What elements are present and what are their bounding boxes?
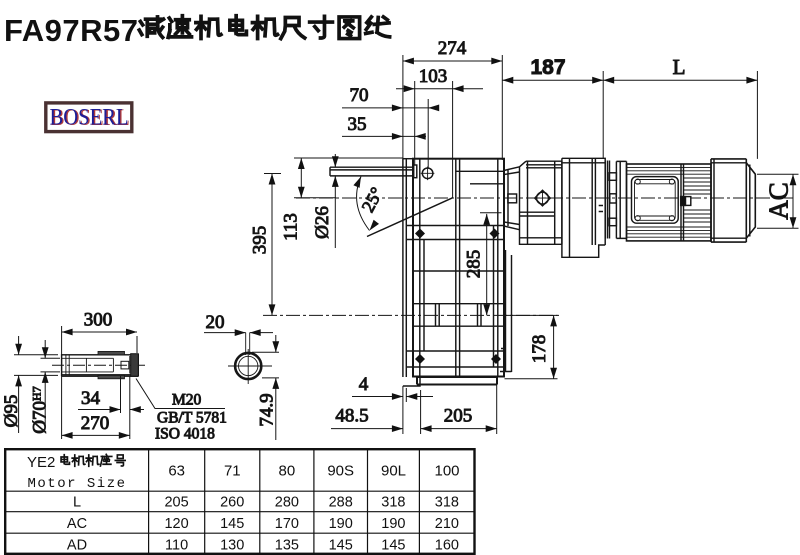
svg-text:80: 80: [279, 463, 296, 480]
svg-text:318: 318: [381, 495, 405, 511]
svg-text:Ø95: Ø95: [1, 395, 22, 428]
svg-text:318: 318: [435, 495, 459, 511]
svg-text:130: 130: [220, 537, 244, 553]
svg-text:100: 100: [434, 463, 459, 480]
svg-text:135: 135: [275, 537, 299, 553]
svg-text:FA97R57: FA97R57: [4, 13, 138, 48]
svg-text:113: 113: [281, 213, 302, 241]
svg-text:145: 145: [220, 516, 244, 532]
svg-text:90L: 90L: [381, 463, 406, 480]
svg-text:160: 160: [435, 537, 459, 553]
svg-text:145: 145: [381, 537, 405, 553]
svg-text:74.9: 74.9: [257, 393, 278, 426]
svg-text:187: 187: [530, 56, 565, 79]
svg-text:AD: AD: [67, 537, 87, 553]
svg-text:90S: 90S: [327, 463, 354, 480]
svg-text:274: 274: [438, 38, 467, 59]
svg-text:L: L: [73, 495, 81, 511]
svg-text:270: 270: [81, 413, 110, 434]
svg-text:103: 103: [419, 66, 448, 87]
svg-text:ISO 4018: ISO 4018: [155, 426, 215, 443]
svg-text:BOSERL: BOSERL: [50, 105, 129, 130]
svg-text:120: 120: [164, 516, 188, 532]
svg-text:63: 63: [168, 463, 185, 480]
svg-text:Motor Size: Motor Size: [27, 476, 126, 492]
svg-text:395: 395: [250, 226, 271, 255]
svg-text:20: 20: [206, 312, 225, 333]
svg-text:Ø26: Ø26: [312, 206, 333, 239]
svg-text:L: L: [673, 55, 686, 79]
svg-text:70: 70: [350, 85, 369, 106]
svg-text:M20: M20: [172, 392, 202, 409]
svg-text:210: 210: [435, 516, 459, 532]
svg-text:4: 4: [359, 374, 369, 395]
svg-text:34: 34: [81, 388, 101, 409]
svg-text:190: 190: [329, 516, 353, 532]
svg-text:205: 205: [444, 406, 473, 427]
svg-text:260: 260: [220, 495, 244, 511]
svg-text:71: 71: [224, 463, 241, 480]
svg-text:285: 285: [464, 250, 485, 279]
svg-text:AC: AC: [67, 516, 87, 532]
svg-text:AC: AC: [764, 182, 794, 220]
svg-text:170: 170: [275, 516, 299, 532]
svg-text:280: 280: [275, 495, 299, 511]
svg-text:288: 288: [329, 495, 353, 511]
svg-text:110: 110: [165, 537, 188, 553]
svg-text:300: 300: [84, 310, 113, 331]
svg-text:35: 35: [348, 114, 367, 135]
svg-text:48.5: 48.5: [335, 406, 368, 427]
svg-text:205: 205: [164, 495, 188, 511]
svg-text:145: 145: [329, 537, 353, 553]
svg-text:190: 190: [381, 516, 405, 532]
svg-text:YE2: YE2: [27, 454, 55, 471]
svg-text:178: 178: [529, 335, 550, 364]
svg-text:GB/T 5781: GB/T 5781: [157, 410, 227, 427]
